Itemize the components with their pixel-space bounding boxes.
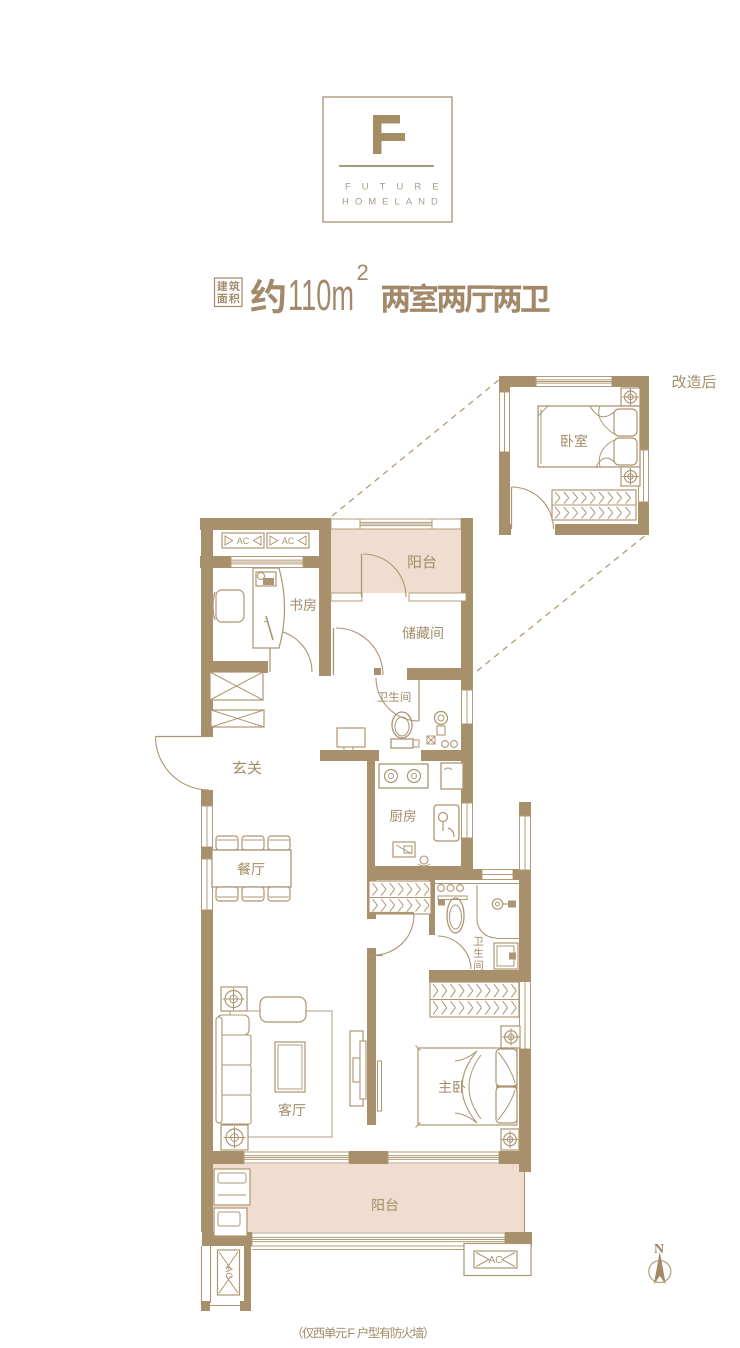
svg-text:HOMELAND: HOMELAND [342, 197, 444, 208]
svg-text:110m: 110m [288, 271, 354, 320]
svg-text:2: 2 [357, 260, 369, 285]
svg-text:AC: AC [489, 1255, 503, 1266]
svg-text:N: N [654, 1242, 664, 1257]
svg-text:AC: AC [237, 536, 250, 546]
svg-text:AC: AC [224, 1266, 234, 1279]
svg-text:AC: AC [282, 536, 295, 546]
svg-text:FUTURE: FUTURE [345, 182, 450, 193]
svg-text:F: F [347, 1326, 355, 1340]
